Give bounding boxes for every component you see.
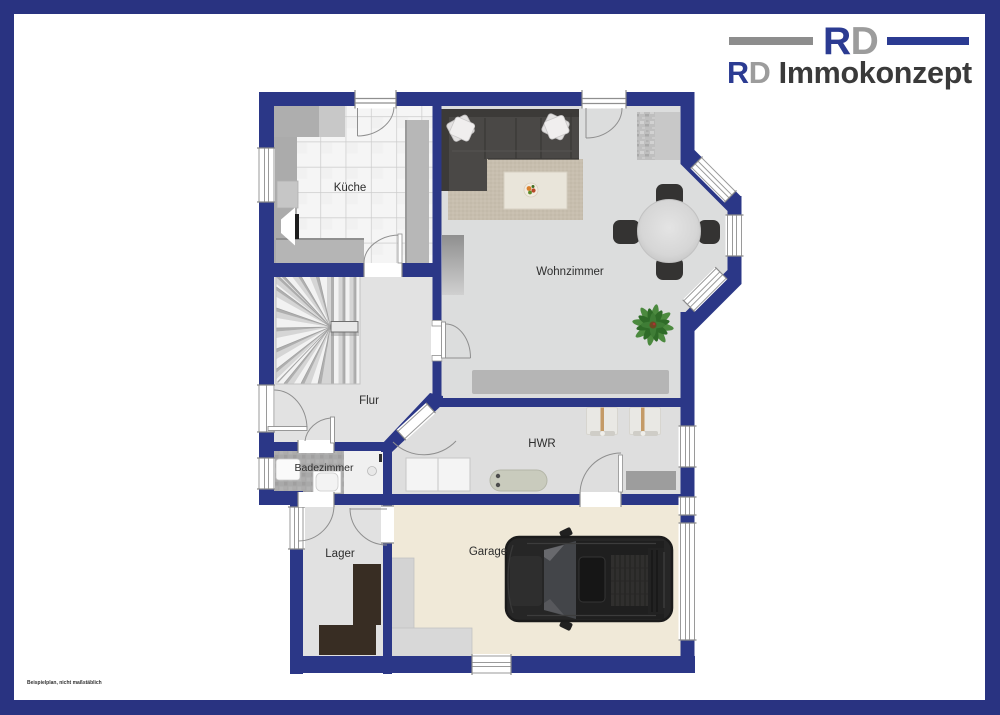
svg-text:Küche: Küche [334, 182, 367, 194]
svg-text:HWR: HWR [528, 438, 555, 450]
svg-text:Wohnzimmer: Wohnzimmer [536, 266, 604, 278]
svg-text:Flur: Flur [359, 395, 379, 407]
svg-text:Lager: Lager [325, 548, 355, 560]
svg-text:Badezimmer: Badezimmer [295, 462, 354, 474]
svg-text:Garage: Garage [469, 546, 507, 558]
